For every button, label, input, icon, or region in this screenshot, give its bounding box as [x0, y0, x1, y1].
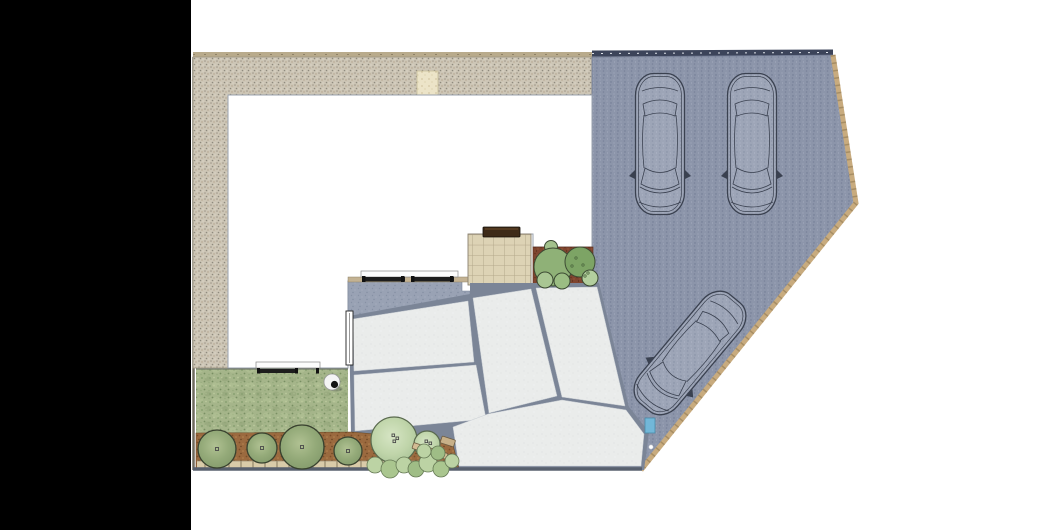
shrub: [582, 270, 598, 286]
tree: [198, 430, 236, 468]
survey-dot: [649, 445, 653, 449]
tree: [280, 425, 324, 469]
tree: [247, 433, 277, 463]
door: [346, 311, 353, 365]
tree: [334, 437, 362, 465]
site-plan-canvas: [0, 0, 1050, 530]
shrub: [537, 272, 553, 288]
parking-marker: [645, 418, 655, 433]
parked-car-2: [721, 74, 783, 215]
shrub: [554, 273, 570, 289]
site-boundary-top: [193, 53, 833, 55]
gate-pad: [417, 71, 438, 95]
patio: [468, 227, 531, 285]
black-side-panel: [0, 0, 191, 530]
parked-car-1: [629, 74, 691, 215]
